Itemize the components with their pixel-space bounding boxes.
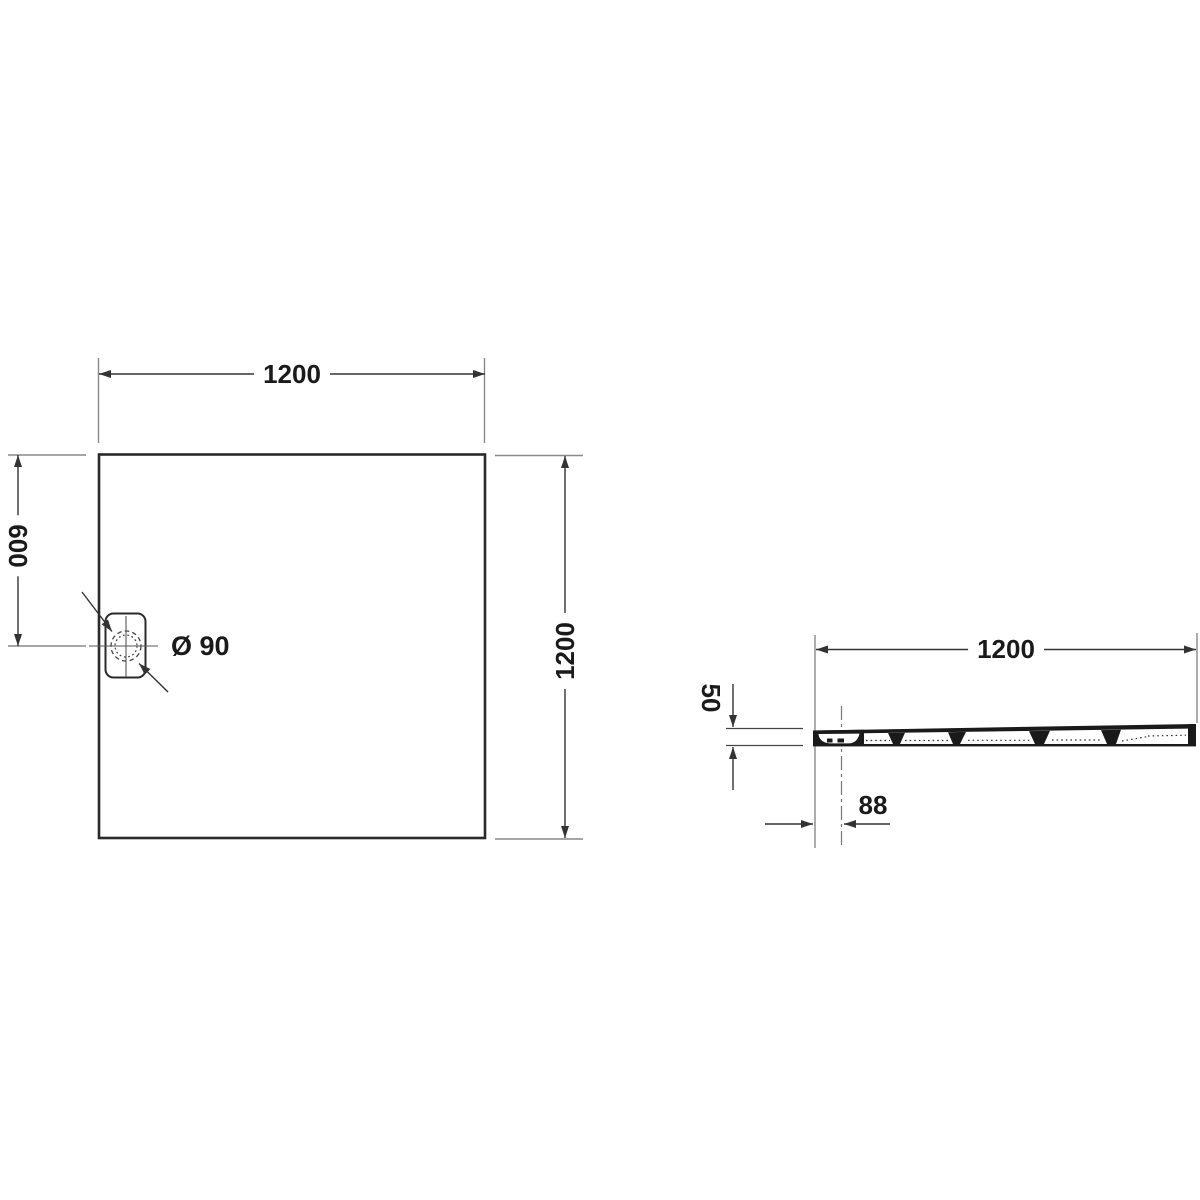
drain-diameter-label: Ø 90 (171, 631, 230, 661)
profile-top-surface (813, 724, 1196, 734)
side-width-dim-label: 1200 (968, 635, 1044, 663)
plan-width-dim-label: 1200 (254, 360, 330, 388)
profile-drain-detail-1 (827, 739, 833, 743)
profile-bottom-edge (813, 744, 1196, 746)
side-88-dim-label: 88 (859, 791, 888, 819)
profile-rib-1 (888, 733, 905, 744)
shower-tray-technical-drawing: 1200 600 1200 Ø 90 1200 50 88 (0, 0, 1200, 1200)
profile-right-wall (1188, 724, 1196, 746)
profile-rib-3 (1029, 731, 1050, 744)
drawing-linework (0, 0, 1200, 1200)
plan-height-dim-label: 1200 (551, 613, 579, 689)
profile-hidden-lines (866, 735, 1186, 741)
side-tray-profile (813, 724, 1196, 746)
profile-rib-2 (948, 732, 966, 744)
profile-rib-4 (1101, 730, 1121, 744)
side-view (726, 633, 1197, 848)
profile-drain-detail-2 (838, 739, 845, 743)
side-50-dim-label: 50 (697, 675, 725, 722)
plan-view (8, 358, 583, 839)
plan-600-dim-label: 600 (4, 515, 32, 576)
